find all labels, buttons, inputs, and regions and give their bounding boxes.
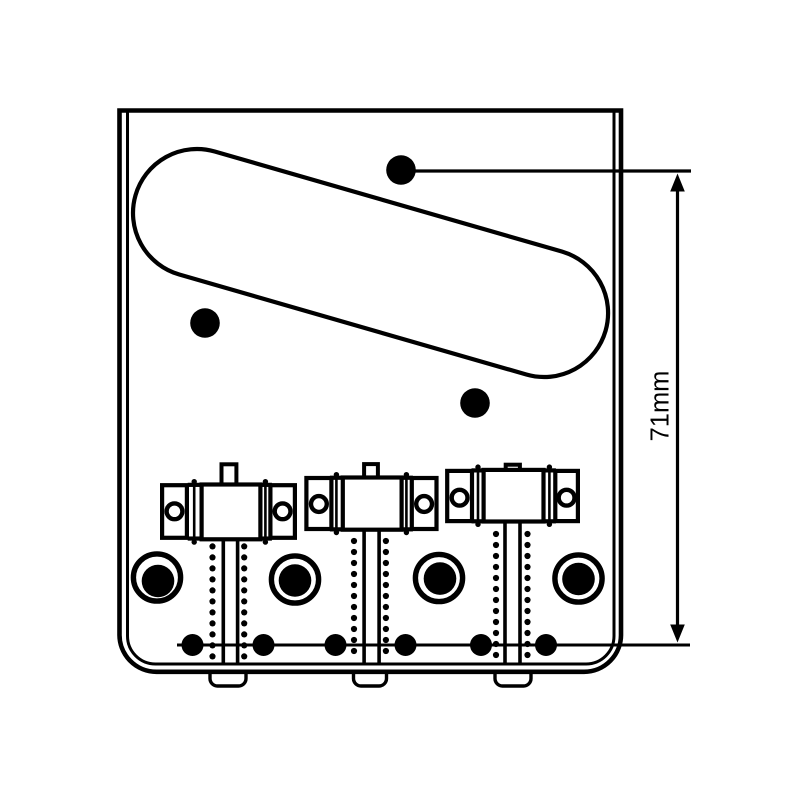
svg-text:71mm: 71mm (647, 371, 675, 442)
